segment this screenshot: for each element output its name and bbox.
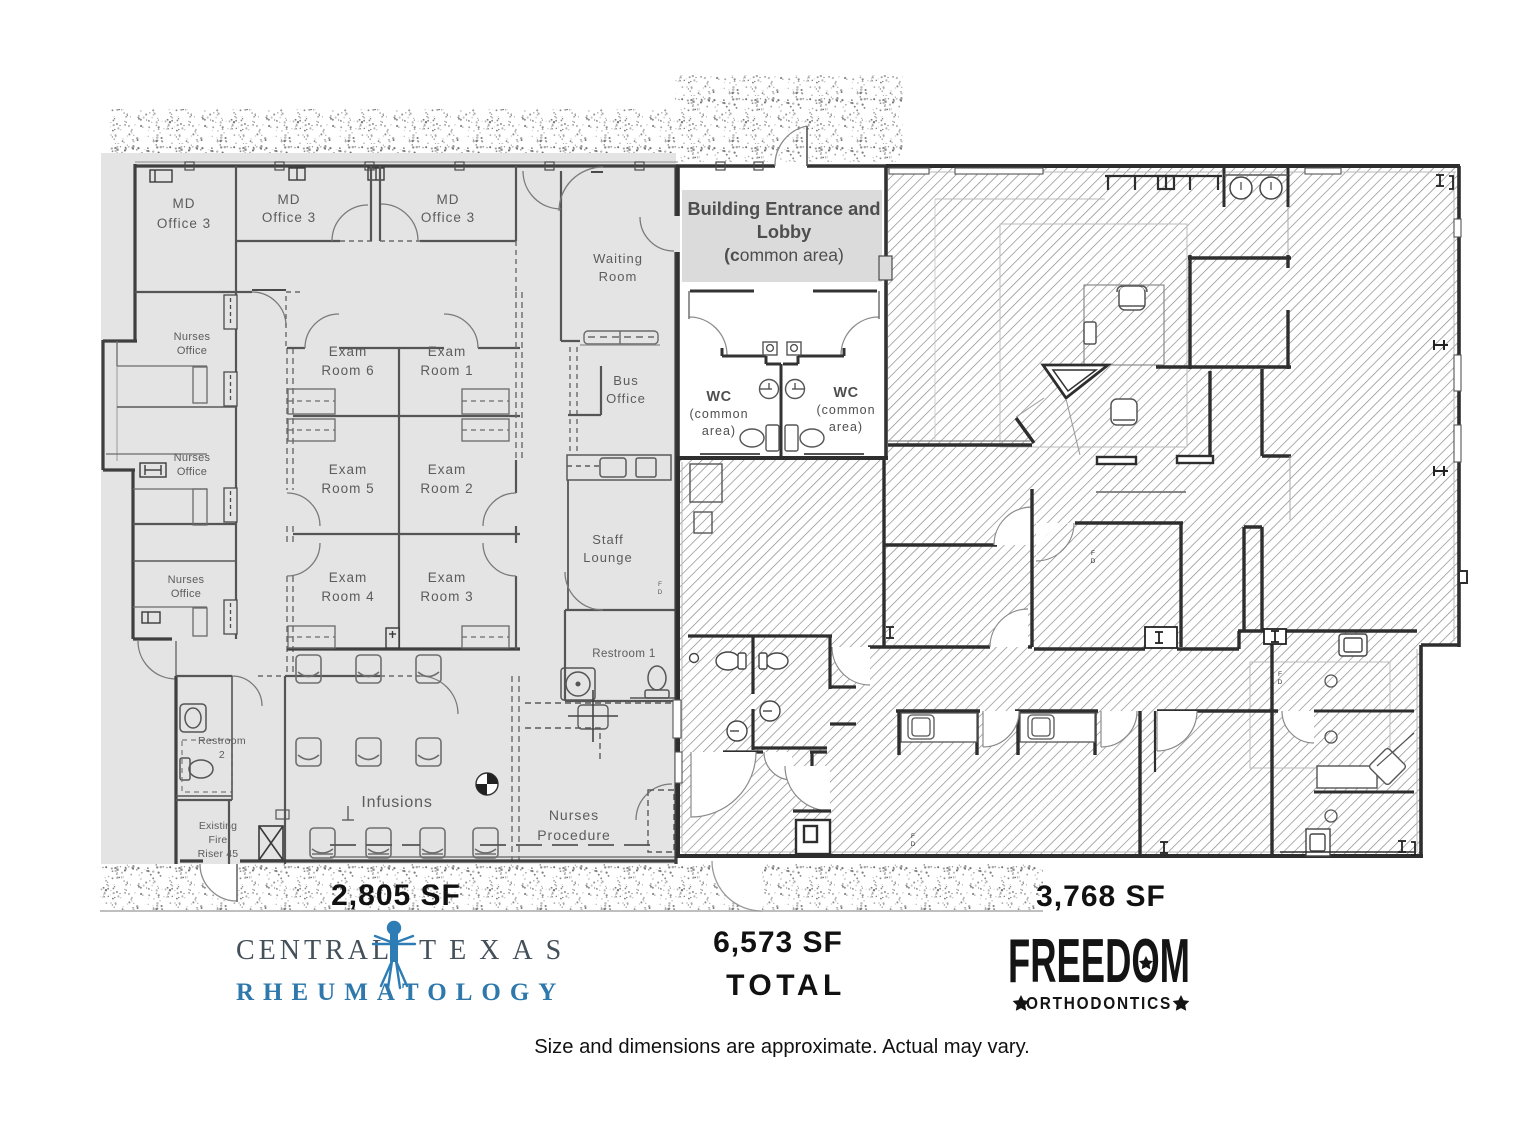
svg-text:Infusions: Infusions: [361, 794, 432, 811]
svg-text:MD: MD: [437, 192, 460, 207]
svg-text:MD: MD: [278, 192, 301, 207]
svg-text:area): area): [702, 424, 736, 438]
svg-text:Exam: Exam: [329, 462, 368, 477]
svg-text:TOTAL: TOTAL: [726, 969, 846, 1002]
svg-text:D: D: [658, 589, 663, 596]
svg-text:Lobby: Lobby: [757, 222, 812, 242]
svg-text:Waiting: Waiting: [593, 251, 643, 266]
svg-text:(common: (common: [689, 407, 748, 421]
svg-text:Size and dimensions are approx: Size and dimensions are approximate. Act…: [534, 1036, 1030, 1058]
svg-text:Fire: Fire: [209, 834, 228, 846]
svg-text:Office 3: Office 3: [421, 210, 475, 225]
svg-text:Office: Office: [177, 466, 207, 478]
svg-text:6,573 SF: 6,573 SF: [713, 926, 843, 959]
svg-text:area): area): [829, 420, 863, 434]
svg-text:TEXAS: TEXAS: [419, 935, 574, 966]
svg-text:Office: Office: [606, 391, 646, 406]
svg-text:Exam: Exam: [428, 570, 467, 585]
svg-text:Lounge: Lounge: [583, 550, 632, 565]
svg-text:Exam: Exam: [329, 570, 368, 585]
svg-text:3,768 SF: 3,768 SF: [1036, 880, 1166, 913]
svg-text:Nurses: Nurses: [549, 807, 599, 823]
svg-text:Existing: Existing: [199, 820, 237, 832]
svg-text:2: 2: [219, 749, 225, 761]
svg-text:Office: Office: [177, 345, 207, 357]
svg-text:(common area): (common area): [724, 245, 844, 265]
svg-text:F: F: [1091, 550, 1095, 557]
svg-text:Office 3: Office 3: [157, 216, 211, 231]
svg-text:Nurses: Nurses: [174, 452, 211, 464]
svg-text:Restroom 1: Restroom 1: [592, 648, 655, 660]
svg-text:Riser 45: Riser 45: [198, 848, 239, 860]
svg-text:CENTRAL: CENTRAL: [236, 935, 393, 966]
svg-text:Office: Office: [171, 588, 201, 600]
svg-text:Restroom: Restroom: [198, 735, 246, 747]
svg-text:Exam: Exam: [329, 344, 368, 359]
svg-text:Nurses: Nurses: [168, 574, 205, 586]
svg-text:D: D: [1278, 679, 1283, 686]
svg-text:Exam: Exam: [428, 462, 467, 477]
svg-text:ORTHODONTICS: ORTHODONTICS: [1026, 993, 1172, 1013]
svg-text:FREEDOM: FREEDOM: [1008, 927, 1190, 996]
svg-text:F: F: [658, 581, 662, 588]
svg-text:MD: MD: [173, 196, 196, 211]
svg-text:Room 6: Room 6: [321, 363, 374, 378]
svg-text:2,805 SF: 2,805 SF: [331, 879, 461, 912]
svg-text:Room 1: Room 1: [420, 363, 473, 378]
svg-text:Room 3: Room 3: [420, 589, 473, 604]
svg-text:Building Entrance and: Building Entrance and: [687, 199, 880, 219]
svg-text:Office 3: Office 3: [262, 210, 316, 225]
svg-text:RHEUMATOLOGY: RHEUMATOLOGY: [236, 979, 565, 1006]
svg-text:Exam: Exam: [428, 344, 467, 359]
svg-text:D: D: [1091, 558, 1096, 565]
svg-text:Procedure: Procedure: [537, 827, 611, 843]
svg-text:Room 4: Room 4: [321, 589, 374, 604]
svg-text:Nurses: Nurses: [174, 331, 211, 343]
svg-text:F: F: [1278, 671, 1282, 678]
svg-text:F: F: [911, 833, 915, 840]
svg-text:Room 2: Room 2: [420, 481, 473, 496]
svg-text:WC: WC: [706, 389, 731, 405]
svg-text:(common: (common: [816, 403, 875, 417]
svg-text:Room: Room: [599, 269, 638, 284]
svg-text:D: D: [911, 841, 916, 848]
svg-text:Staff: Staff: [592, 532, 624, 547]
svg-text:Bus: Bus: [613, 373, 638, 388]
svg-text:WC: WC: [833, 385, 858, 401]
svg-text:Room 5: Room 5: [321, 481, 374, 496]
